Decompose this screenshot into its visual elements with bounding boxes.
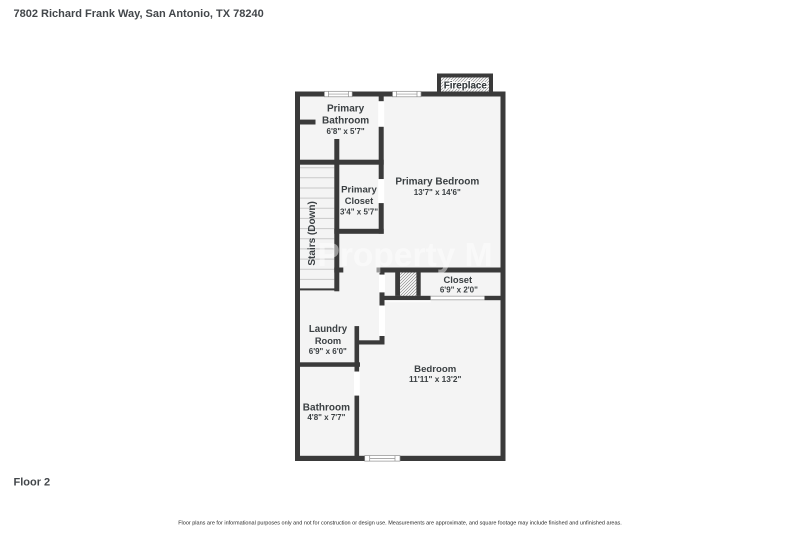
svg-text:Floor 2: Floor 2 (14, 477, 51, 489)
svg-text:Bathroom: Bathroom (322, 115, 369, 126)
svg-text:11'11" x 13'2": 11'11" x 13'2" (409, 374, 461, 384)
svg-text:Floor plans are for informatio: Floor plans are for informational purpos… (178, 521, 622, 527)
svg-text:6'8" x 5'7": 6'8" x 5'7" (327, 127, 365, 136)
svg-text:Closet: Closet (345, 196, 373, 206)
svg-text:Primary Bedroom: Primary Bedroom (395, 176, 479, 187)
svg-text:6'9" x 6'0": 6'9" x 6'0" (309, 347, 347, 356)
svg-text:Property M: Property M (318, 237, 493, 274)
svg-text:Laundry: Laundry (309, 324, 348, 335)
svg-text:7802 Richard Frank Way, San An: 7802 Richard Frank Way, San Antonio, TX … (14, 8, 264, 20)
svg-text:13'7" x 14'6": 13'7" x 14'6" (414, 188, 461, 197)
svg-text:Fireplace: Fireplace (444, 80, 488, 91)
svg-text:3'4" x 5'7": 3'4" x 5'7" (340, 207, 378, 216)
svg-text:Primary: Primary (327, 104, 365, 115)
svg-text:6'9" x 2'0": 6'9" x 2'0" (440, 285, 478, 294)
svg-text:Primary: Primary (341, 185, 377, 196)
svg-text:Stairs (Down): Stairs (Down) (307, 201, 318, 265)
svg-text:4'8" x 7'7": 4'8" x 7'7" (307, 413, 345, 422)
svg-text:Room: Room (315, 336, 341, 346)
svg-text:Closet: Closet (443, 274, 472, 285)
